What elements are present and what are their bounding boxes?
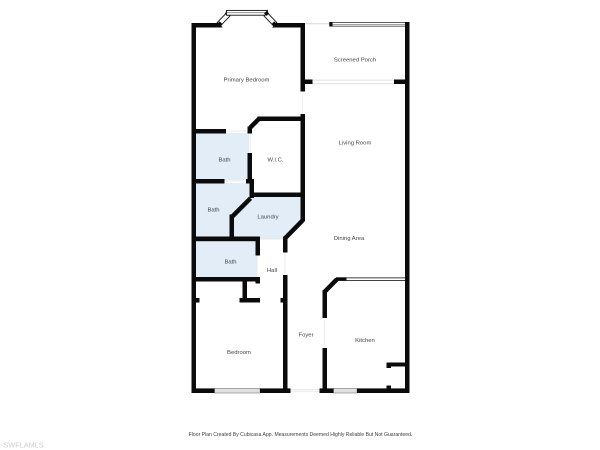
svg-text:Kitchen: Kitchen <box>355 338 375 344</box>
svg-text:Laundry: Laundry <box>257 214 278 220</box>
svg-text:W.I.C.: W.I.C. <box>267 157 283 163</box>
svg-text:Hall: Hall <box>267 268 277 274</box>
svg-text:Living Room: Living Room <box>339 140 372 146</box>
svg-text:Floor Plan Created By Cubicasa: Floor Plan Created By Cubicasa App. Meas… <box>189 432 413 438</box>
svg-text:Foyer: Foyer <box>298 332 313 338</box>
svg-text:Bath: Bath <box>218 157 230 163</box>
svg-text:Screened Porch: Screened Porch <box>334 57 376 63</box>
svg-text:SWFLAMLS: SWFLAMLS <box>4 441 44 450</box>
svg-text:Primary Bedroom: Primary Bedroom <box>224 77 270 83</box>
svg-text:Bath: Bath <box>224 259 236 265</box>
svg-text:Bath: Bath <box>207 207 219 213</box>
svg-text:Dining Area: Dining Area <box>334 236 365 242</box>
svg-text:Bedroom: Bedroom <box>227 350 251 356</box>
